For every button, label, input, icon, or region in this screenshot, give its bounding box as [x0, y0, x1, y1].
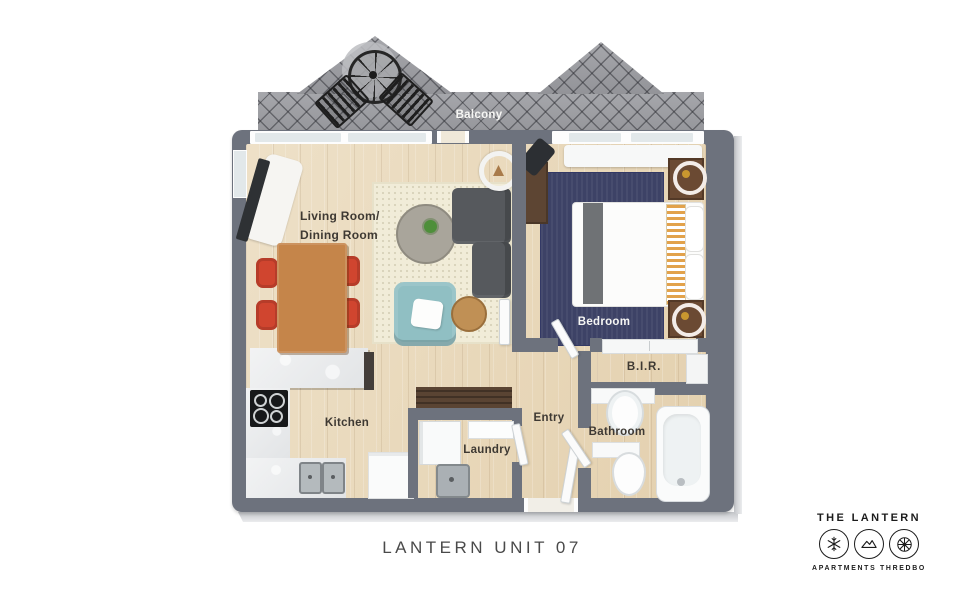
logo-icons — [819, 529, 919, 559]
wall — [578, 468, 591, 498]
burner-icon — [270, 410, 283, 423]
wall-shadow-bottom — [238, 512, 738, 522]
table-lamp-icon — [673, 161, 707, 195]
bed-runner — [583, 203, 603, 304]
side-table — [451, 296, 487, 332]
wall — [578, 351, 591, 428]
burner-icon — [269, 393, 285, 409]
living-window — [250, 131, 432, 144]
table-lamp-icon — [672, 303, 706, 337]
bath-faucet-icon — [677, 478, 685, 486]
label-living-dining: Living Room/ Dining Room — [300, 207, 380, 245]
sofa-chaise — [452, 188, 511, 244]
dining-chair — [256, 300, 278, 330]
window-glass — [348, 133, 426, 142]
kitchen-peninsula-counter — [250, 348, 368, 388]
brand-logo: THE LANTERN — [806, 512, 932, 572]
wall — [512, 144, 526, 338]
wall — [512, 338, 558, 352]
bed-pillow — [685, 254, 704, 300]
bathtub-inner — [663, 414, 701, 486]
bed-pillow — [685, 206, 704, 252]
bedroom-window — [552, 131, 704, 144]
robe-shelf — [686, 354, 708, 384]
balcony-door-opening — [437, 131, 469, 143]
wall — [512, 462, 522, 498]
robe-sliding-doors — [602, 339, 698, 354]
armchair-pillow — [410, 298, 444, 330]
mountain-icon — [854, 529, 884, 559]
label-laundry: Laundry — [463, 444, 510, 456]
living-door — [499, 299, 510, 345]
wall — [408, 420, 418, 498]
floorplan-page: Balcony Living Room/ Dining Room Bedroom… — [0, 0, 960, 600]
label-balcony: Balcony — [456, 109, 503, 121]
sofa-main — [472, 242, 511, 298]
label-kitchen: Kitchen — [325, 417, 369, 429]
logo-name: THE LANTERN — [817, 512, 921, 524]
wheel-icon — [889, 529, 919, 559]
label-bir: B.I.R. — [627, 361, 661, 373]
kitchen-counter-end-panel — [364, 352, 374, 390]
washing-machine — [419, 421, 461, 465]
kitchen-sink-right — [322, 462, 345, 494]
coffee-table — [396, 204, 456, 264]
cooktop — [250, 390, 288, 427]
window-glass — [631, 133, 693, 142]
wall — [590, 338, 602, 352]
logo-subtitle: APARTMENTS THREDBO — [812, 565, 926, 572]
hall-bench — [416, 387, 512, 410]
window-glass — [569, 133, 621, 142]
laundry-shelf — [468, 421, 514, 439]
window-glass — [255, 133, 341, 142]
burner-icon — [254, 394, 267, 407]
bed-headboard-cushion — [666, 204, 686, 305]
kitchen-sink-left — [299, 462, 322, 494]
roof-gable-right — [538, 42, 664, 94]
burner-icon — [253, 408, 269, 424]
dining-chair — [256, 258, 278, 288]
side-window — [233, 150, 247, 198]
laundry-sink — [436, 464, 470, 498]
dining-table — [277, 243, 347, 353]
plan-title: LANTERN UNIT 07 — [382, 538, 582, 558]
snowflake-icon — [819, 529, 849, 559]
wall-shadow-right — [734, 136, 742, 514]
label-bedroom: Bedroom — [578, 316, 631, 328]
label-entry: Entry — [534, 412, 565, 424]
label-living-line2: Dining Room — [300, 226, 380, 245]
wall — [408, 408, 522, 420]
label-living-line1: Living Room/ — [300, 207, 380, 226]
plant-icon — [424, 220, 437, 233]
label-bathroom: Bathroom — [589, 426, 646, 438]
